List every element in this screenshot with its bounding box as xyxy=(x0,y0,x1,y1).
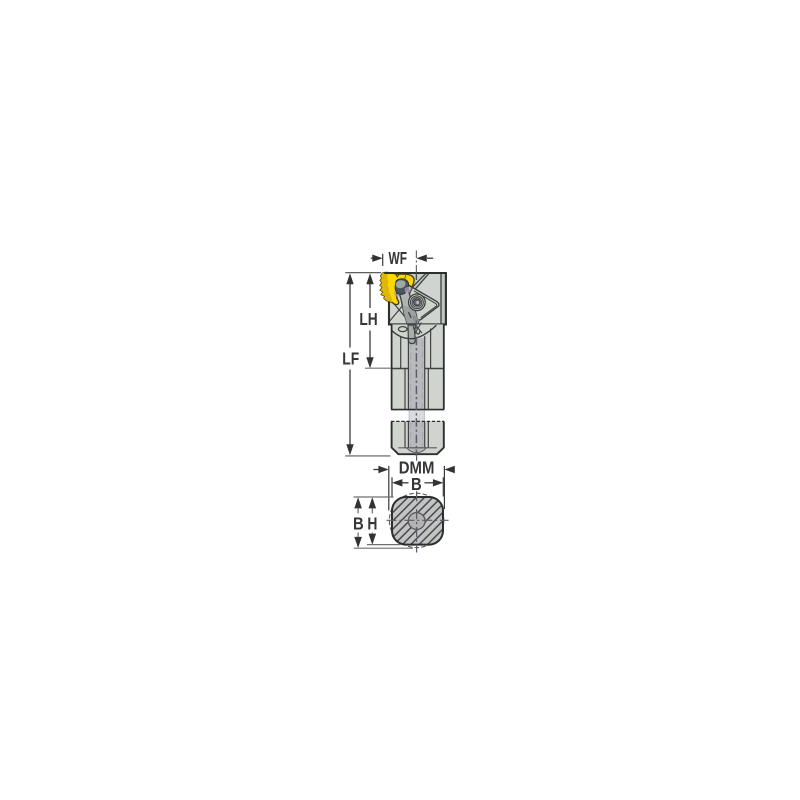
svg-text:WF: WF xyxy=(389,248,408,268)
svg-text:LF: LF xyxy=(342,349,359,369)
svg-text:H: H xyxy=(367,513,377,533)
svg-text:B: B xyxy=(353,513,364,533)
svg-text:LH: LH xyxy=(359,309,377,329)
svg-text:B: B xyxy=(411,474,422,494)
